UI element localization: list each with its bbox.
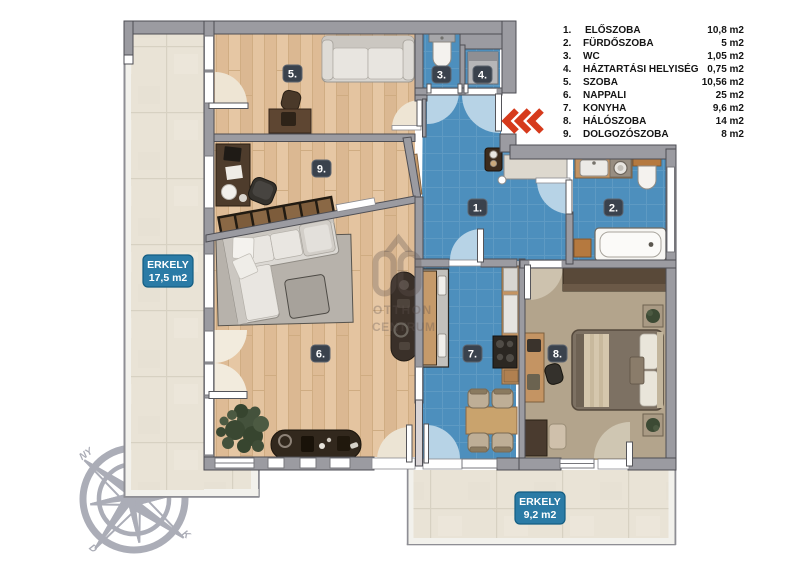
- svg-text:14 m2: 14 m2: [716, 116, 745, 127]
- svg-text:6.: 6.: [316, 349, 325, 361]
- svg-text:ERKELY: ERKELY: [519, 496, 561, 508]
- svg-text:7.: 7.: [563, 103, 572, 114]
- svg-text:NY: NY: [77, 445, 96, 463]
- svg-text:NAPPALI: NAPPALI: [583, 90, 626, 101]
- svg-text:8 m2: 8 m2: [721, 129, 744, 140]
- svg-text:FÜRDŐSZOBA: FÜRDŐSZOBA: [583, 36, 654, 49]
- svg-text:7.: 7.: [468, 349, 477, 361]
- svg-text:ELŐSZOBA: ELŐSZOBA: [585, 23, 641, 36]
- svg-text:10,56 m2: 10,56 m2: [702, 77, 745, 88]
- svg-text:1,05 m2: 1,05 m2: [707, 51, 744, 62]
- svg-text:KONYHA: KONYHA: [583, 103, 626, 114]
- svg-text:4.: 4.: [563, 64, 572, 75]
- svg-text:4.: 4.: [478, 70, 487, 82]
- svg-text:5.: 5.: [288, 69, 297, 81]
- svg-text:0,75 m2: 0,75 m2: [707, 64, 744, 75]
- svg-text:3.: 3.: [437, 70, 446, 82]
- svg-text:8.: 8.: [553, 349, 562, 361]
- svg-text:3.: 3.: [563, 51, 572, 62]
- svg-text:WC: WC: [583, 51, 600, 62]
- svg-text:HÁLÓSZOBA: HÁLÓSZOBA: [583, 114, 646, 127]
- svg-text:2.: 2.: [609, 203, 618, 215]
- svg-text:25 m2: 25 m2: [716, 90, 745, 101]
- svg-text:1.: 1.: [563, 25, 572, 36]
- svg-text:17,5 m2: 17,5 m2: [149, 272, 188, 284]
- svg-text:2.: 2.: [563, 38, 572, 49]
- svg-text:K: K: [179, 528, 192, 542]
- svg-text:9,6 m2: 9,6 m2: [713, 103, 745, 114]
- svg-text:6.: 6.: [563, 90, 572, 101]
- svg-text:SZOBA: SZOBA: [583, 77, 618, 88]
- svg-text:1.: 1.: [473, 203, 482, 215]
- svg-text:D: D: [86, 542, 99, 555]
- svg-text:9.: 9.: [317, 164, 326, 176]
- svg-text:10,8 m2: 10,8 m2: [707, 25, 744, 36]
- svg-text:HÁZTARTÁSI HELYISÉG: HÁZTARTÁSI HELYISÉG: [583, 62, 699, 75]
- svg-text:CENTRUM: CENTRUM: [372, 320, 436, 334]
- svg-text:9.: 9.: [563, 129, 572, 140]
- svg-text:ERKELY: ERKELY: [147, 259, 189, 271]
- svg-text:8.: 8.: [563, 116, 572, 127]
- svg-text:9,2 m2: 9,2 m2: [524, 509, 557, 521]
- svg-text:5 m2: 5 m2: [721, 38, 744, 49]
- svg-text:5.: 5.: [563, 77, 572, 88]
- svg-text:DOLGOZÓSZOBA: DOLGOZÓSZOBA: [583, 127, 669, 140]
- svg-text:OTTHON: OTTHON: [373, 303, 433, 317]
